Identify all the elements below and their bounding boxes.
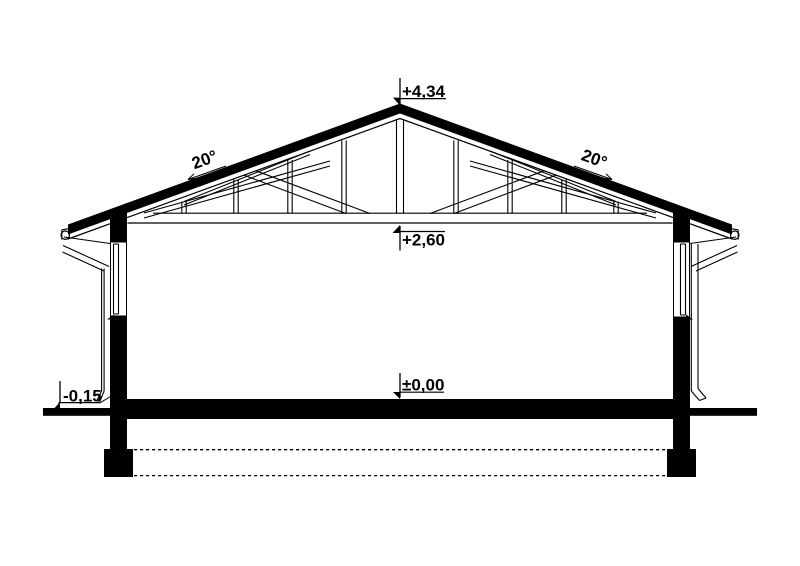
svg-text:±0,00: ±0,00 bbox=[402, 376, 444, 395]
svg-text:+4,34: +4,34 bbox=[402, 82, 446, 101]
svg-text:+2,60: +2,60 bbox=[402, 231, 445, 250]
svg-text:-0,15: -0,15 bbox=[63, 387, 102, 406]
svg-text:20°: 20° bbox=[579, 146, 610, 173]
svg-text:20°: 20° bbox=[189, 146, 220, 173]
